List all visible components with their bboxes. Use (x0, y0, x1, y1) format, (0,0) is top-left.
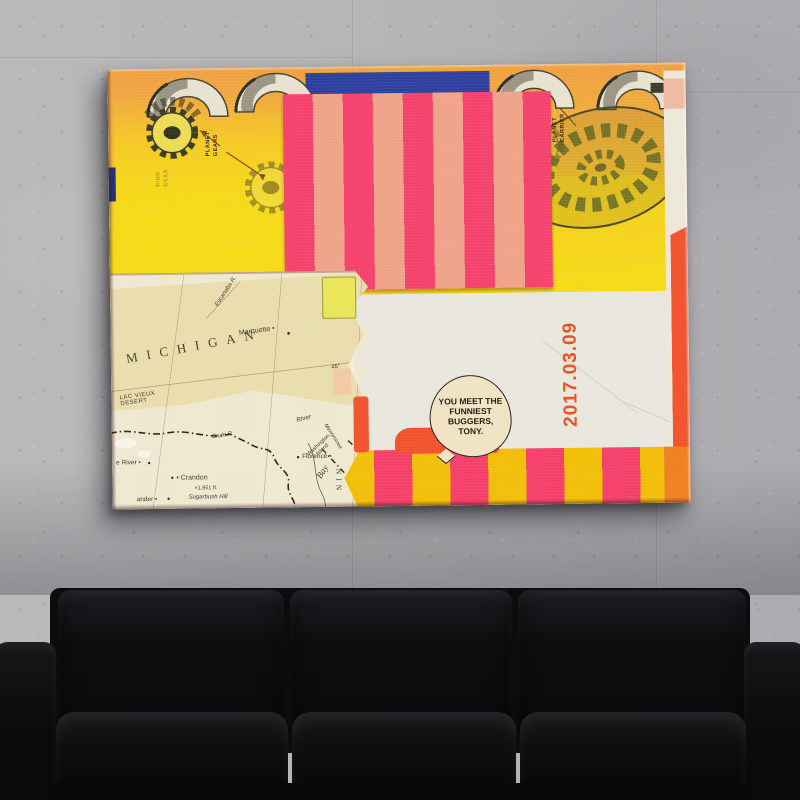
collage: PLANET GEARS RING GEAR PLANET CARRIER 20… (107, 62, 690, 509)
map-label-e-river: e River • (116, 459, 141, 466)
sofa-base (46, 783, 754, 800)
orange-paint-sliver (353, 396, 369, 452)
map-label-wisconsin: NIN (334, 469, 343, 494)
black-sofa (0, 575, 800, 800)
date-stamp: 2017.03.09 (559, 297, 587, 427)
torn-collage-patch-yellow (322, 277, 357, 319)
map-label-elevation: ×1,951 ft. (194, 485, 217, 491)
torn-collage-patch-flesh (333, 369, 351, 395)
map-label-ander: ander • (137, 496, 158, 503)
wall-seam-horizontal (0, 57, 352, 59)
sofa-armrest-left (0, 642, 56, 800)
room-scene: PLANET GEARS RING GEAR PLANET CARRIER 20… (0, 0, 800, 800)
planet-gears-label: PLANET GEARS (205, 110, 221, 156)
map-label-crandon: • Crandon (176, 474, 207, 481)
canvas-artwork: PLANET GEARS RING GEAR PLANET CARRIER 20… (107, 62, 690, 509)
pink-striped-paper (283, 91, 553, 290)
planet-carrier-label: PLANET CARRIER (552, 92, 568, 142)
ring-gear-label: RING GEAR (155, 145, 171, 187)
sofa-armrest-right (744, 642, 800, 800)
map-label-sugarbush: Sugarbush Hill (189, 494, 228, 500)
